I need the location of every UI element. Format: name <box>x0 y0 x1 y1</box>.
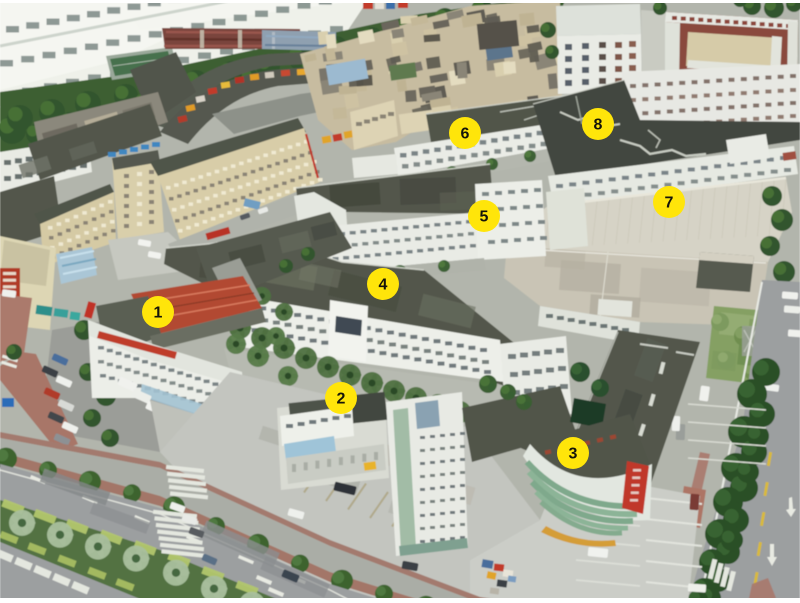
svg-text:3: 3 <box>569 446 578 463</box>
svg-text:6: 6 <box>461 126 470 143</box>
svg-text:4: 4 <box>379 277 388 294</box>
svg-text:2: 2 <box>337 391 346 408</box>
svg-text:5: 5 <box>480 209 489 226</box>
svg-text:8: 8 <box>594 117 603 134</box>
svg-text:7: 7 <box>665 195 674 212</box>
svg-text:1: 1 <box>154 305 163 322</box>
